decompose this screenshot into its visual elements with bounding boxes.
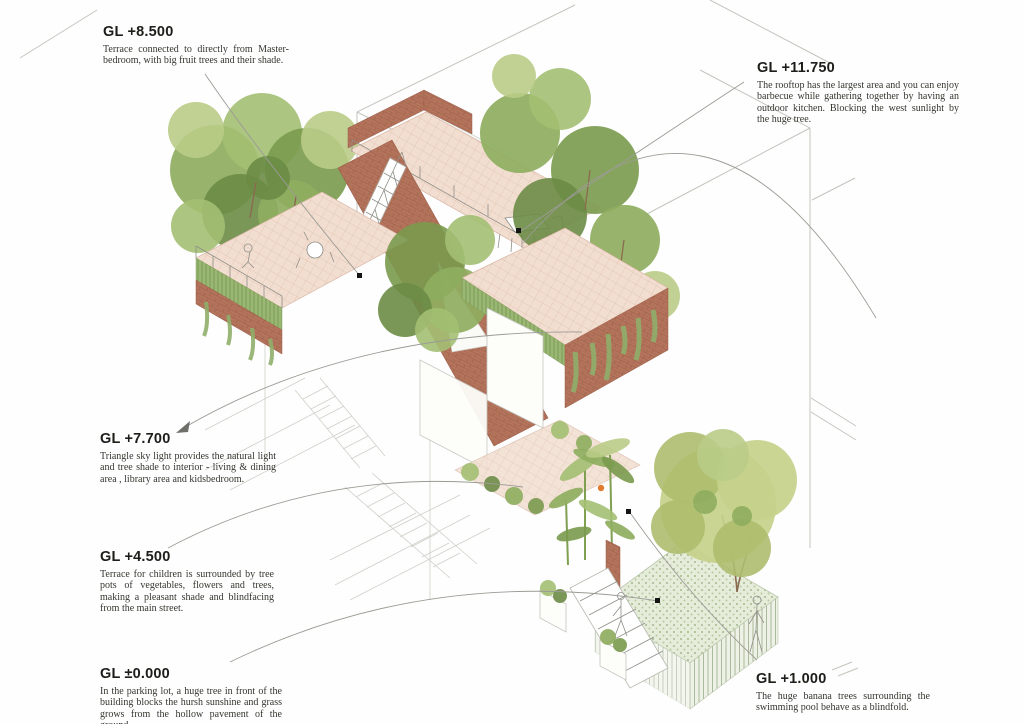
marker-dot (655, 598, 660, 603)
annotation-gl-7700: GL +7.700 Triangle sky light provides th… (100, 431, 276, 485)
banana-flower (598, 485, 604, 491)
level-label: GL +4.500 (100, 549, 274, 565)
annotation-gl-11750: GL +11.750 The rooftop has the largest a… (757, 60, 959, 126)
level-description: Terrace for children is surrounded by tr… (100, 569, 274, 615)
architectural-diagram-page: .g1{fill:#8fae60;fill-opacity:.92}.g2{fi… (0, 0, 1024, 724)
level-label: GL ±0.000 (100, 666, 282, 682)
marker-dot (357, 273, 362, 278)
marker-dot (516, 228, 521, 233)
level-label: GL +7.700 (100, 431, 276, 447)
level-description: In the parking lot, a huge tree in front… (100, 686, 282, 724)
level-label: GL +8.500 (103, 24, 289, 40)
annotation-gl-0000: GL ±0.000 In the parking lot, a huge tre… (100, 666, 282, 724)
level-label: GL +11.750 (757, 60, 959, 76)
annotation-gl-8500: GL +8.500 Terrace connected to directly … (103, 24, 289, 67)
level-description: The rooftop has the largest area and you… (757, 80, 959, 126)
level-description: The huge banana trees surrounding the sw… (756, 691, 930, 714)
annotation-gl-1000: GL +1.000 The huge banana trees surround… (756, 671, 930, 714)
level-description: Triangle sky light provides the natural … (100, 451, 276, 485)
marker-dot (626, 509, 631, 514)
level-description: Terrace connected to directly from Maste… (103, 44, 289, 67)
annotation-gl-4500: GL +4.500 Terrace for children is surrou… (100, 549, 274, 615)
level-label: GL +1.000 (756, 671, 930, 687)
